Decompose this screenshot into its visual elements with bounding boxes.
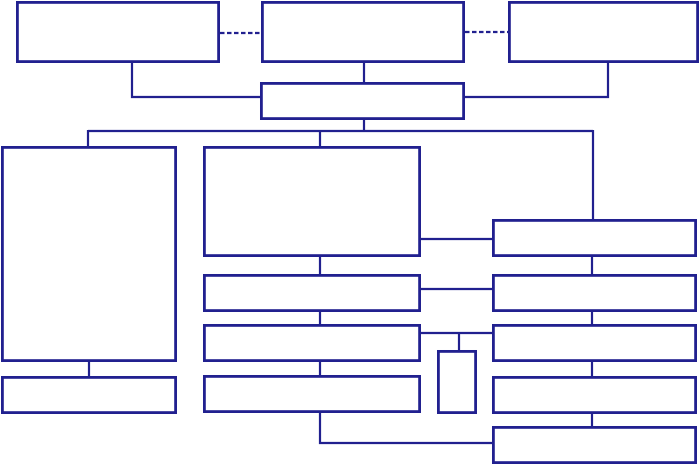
- left-bottom-box: [2, 377, 175, 412]
- top-box-left: [17, 2, 218, 61]
- connector-top-right-elbow: [465, 63, 608, 97]
- connector-top-left-elbow: [132, 63, 260, 97]
- top-box-right: [509, 2, 697, 61]
- diagram-page: [0, 0, 700, 465]
- top-box-center: [262, 2, 463, 61]
- hub-box: [261, 83, 463, 118]
- center-large-box: [204, 147, 419, 255]
- right-row-box-3: [493, 325, 695, 360]
- org-chart-diagram: [0, 0, 700, 465]
- connector-bottom-elbow: [320, 412, 493, 443]
- right-row-box-2: [493, 275, 695, 310]
- center-row-box-1: [204, 275, 419, 310]
- right-row-box-5: [493, 427, 695, 462]
- right-row-box-4: [493, 377, 695, 412]
- center-row-box-3: [204, 376, 419, 411]
- left-tall-box: [2, 147, 175, 360]
- small-upright-box: [438, 351, 475, 412]
- right-row-box-1: [493, 220, 695, 255]
- center-row-box-2: [204, 325, 419, 360]
